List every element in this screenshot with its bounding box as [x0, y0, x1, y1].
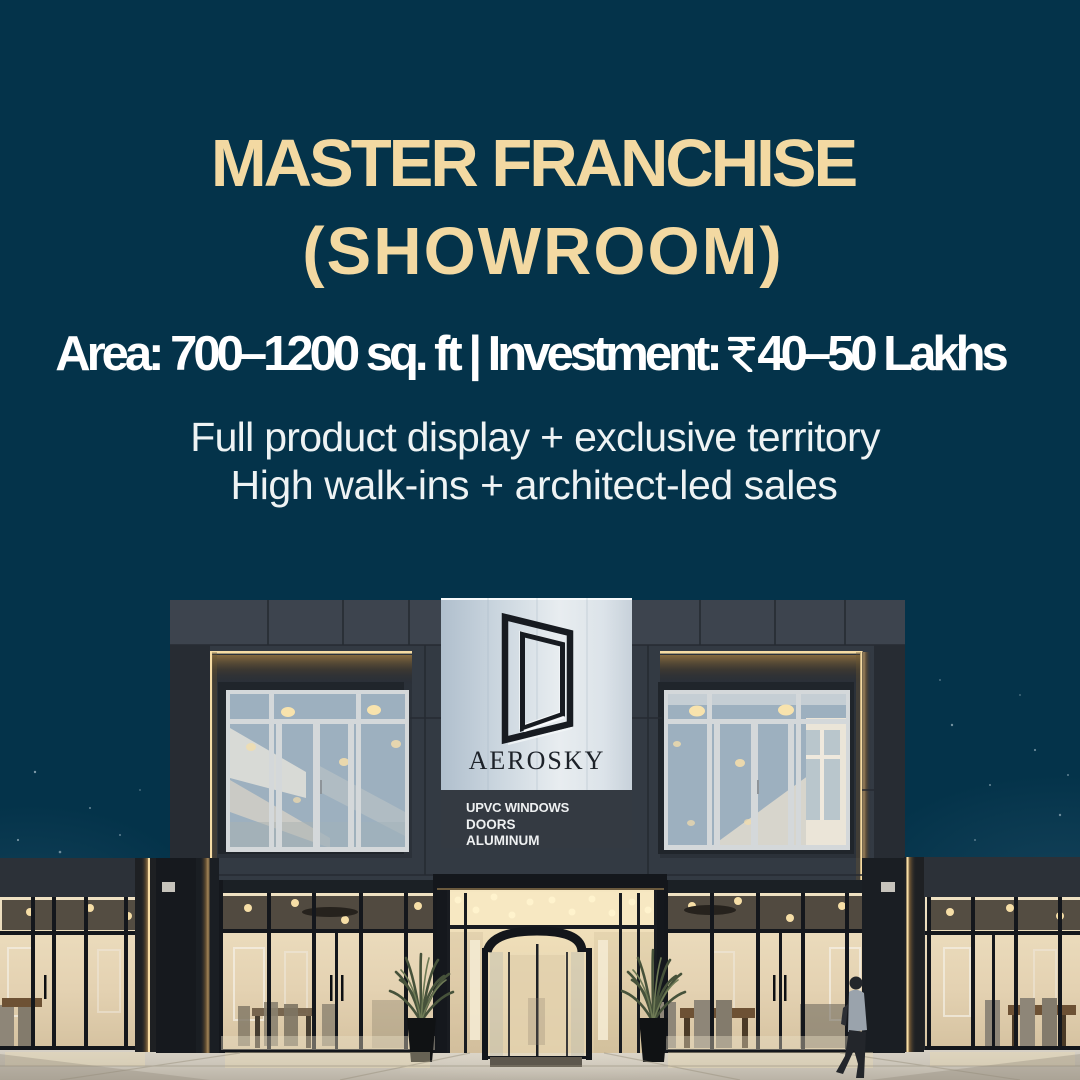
svg-text:DOORS: DOORS: [466, 817, 516, 832]
svg-text:AEROSKY: AEROSKY: [469, 746, 606, 775]
svg-text:UPVC WINDOWS: UPVC WINDOWS: [466, 800, 570, 815]
svg-text:ALUMINUM: ALUMINUM: [466, 833, 540, 848]
